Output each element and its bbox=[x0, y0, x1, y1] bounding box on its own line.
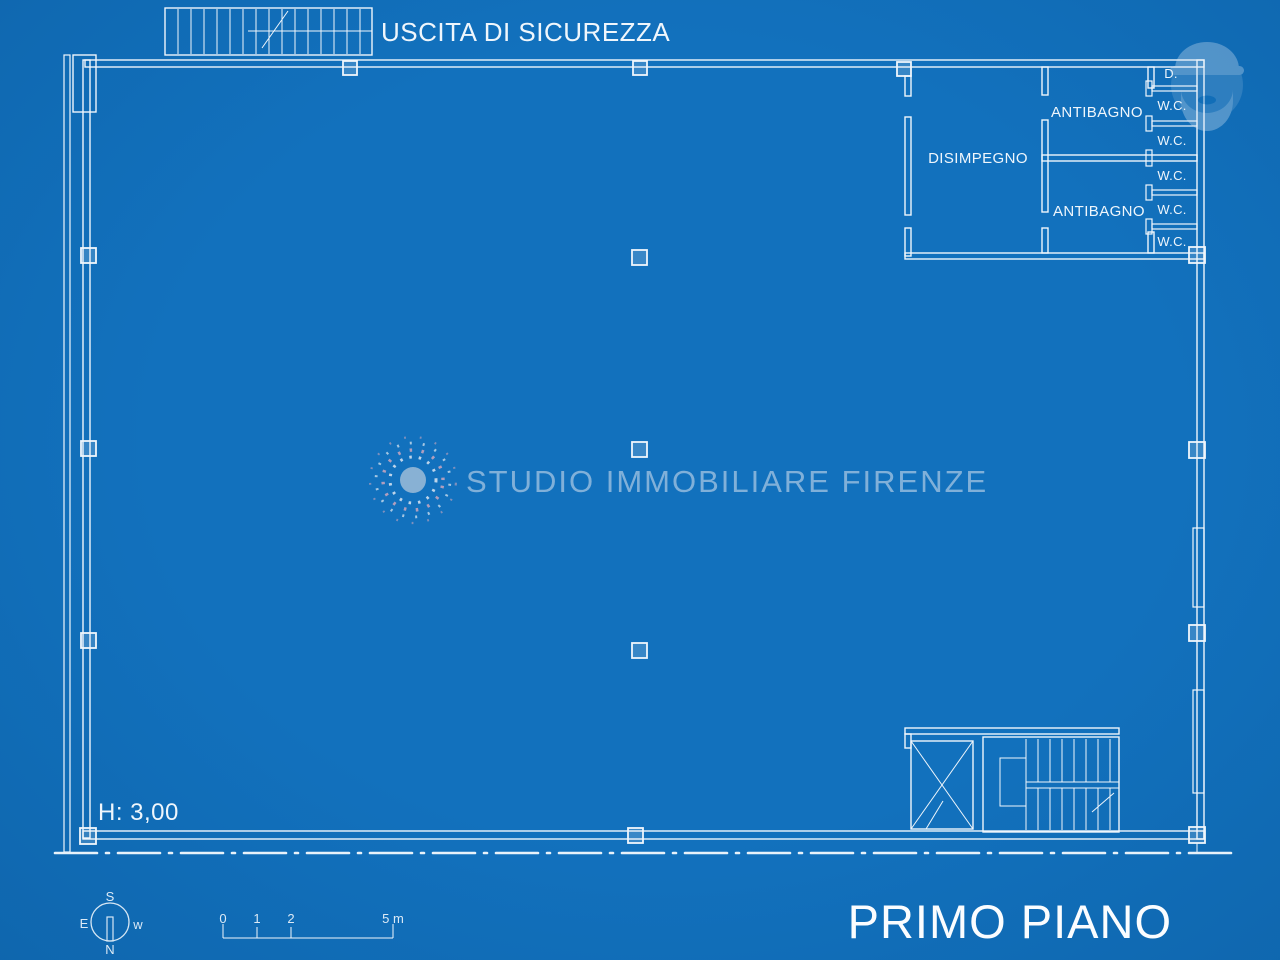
wc-divider bbox=[1152, 190, 1197, 195]
wall-segment bbox=[905, 117, 911, 215]
right-wall-window-1 bbox=[1193, 528, 1204, 607]
column bbox=[633, 61, 647, 75]
compass: S E w N bbox=[80, 889, 144, 957]
scale-tick-5m: 5 m bbox=[382, 911, 404, 926]
wc-divider bbox=[1152, 224, 1197, 229]
room-label-wc-2: W.C. bbox=[1157, 133, 1186, 148]
room-label-antibagno-top: ANTIBAGNO bbox=[1051, 104, 1143, 121]
column bbox=[1189, 827, 1205, 843]
scale-tick-2: 2 bbox=[287, 911, 294, 926]
stair-block-top-wall bbox=[905, 728, 1119, 734]
logo-core bbox=[400, 467, 426, 493]
room-label-wc-4: W.C. bbox=[1157, 202, 1186, 217]
stair-landing bbox=[1026, 782, 1119, 788]
blueprint-floor-plan: USCITA DI SICUREZZA bbox=[0, 0, 1280, 960]
elevator-and-stairs bbox=[905, 728, 1119, 832]
right-wall-window-2 bbox=[1193, 690, 1204, 793]
agency-logo-starburst-icon bbox=[364, 431, 461, 528]
door-jamb bbox=[1146, 185, 1152, 200]
column bbox=[1189, 625, 1205, 641]
left-wall-outer-face bbox=[64, 55, 70, 852]
room-label-antibagno-bottom: ANTIBAGNO bbox=[1053, 203, 1145, 220]
mouth bbox=[1198, 96, 1216, 105]
height-note: H: 3,00 bbox=[98, 799, 179, 826]
compass-bottom-letter: N bbox=[105, 942, 114, 957]
stair-well bbox=[1000, 758, 1026, 806]
agency-watermark: STUDIO IMMOBILIARE FIRENZE bbox=[364, 431, 988, 528]
wall-segment bbox=[1148, 232, 1154, 253]
column bbox=[81, 248, 96, 263]
wall-segment bbox=[905, 228, 911, 256]
column bbox=[81, 441, 96, 456]
room-label-wc-5: W.C. bbox=[1157, 234, 1186, 249]
fire-escape-break-line bbox=[262, 11, 288, 48]
column bbox=[1189, 247, 1205, 263]
column bbox=[632, 442, 647, 457]
agency-watermark-text: STUDIO IMMOBILIARE FIRENZE bbox=[466, 464, 988, 499]
wall-segment bbox=[1148, 67, 1154, 88]
column bbox=[1189, 442, 1205, 458]
compass-circle bbox=[91, 903, 129, 941]
column bbox=[81, 633, 96, 648]
column bbox=[632, 643, 647, 658]
compass-needle bbox=[107, 917, 113, 941]
scale-tick-0: 0 bbox=[219, 911, 226, 926]
hard-hat bbox=[1175, 42, 1239, 69]
wall-segment bbox=[1042, 228, 1048, 253]
service-rooms-block: DISIMPEGNO ANTIBAGNO ANTIBAGNO D. W.C. W… bbox=[905, 66, 1204, 259]
wall-segment bbox=[1042, 120, 1048, 212]
column-markers bbox=[80, 61, 1205, 844]
column bbox=[628, 828, 643, 843]
wall-segment bbox=[905, 76, 911, 96]
fire-escape-stairs bbox=[165, 8, 372, 55]
room-label-disimpegno: DISIMPEGNO bbox=[928, 150, 1028, 167]
scale-bar: 0 1 2 5 m bbox=[219, 911, 403, 938]
compass-right-letter: w bbox=[132, 917, 143, 932]
column bbox=[632, 250, 647, 265]
floor-plan-drawing: USCITA DI SICUREZZA bbox=[0, 0, 1280, 960]
stair-break-line bbox=[1092, 793, 1114, 812]
wall-segment bbox=[905, 734, 911, 748]
compass-top-letter: S bbox=[106, 889, 115, 904]
column bbox=[897, 62, 911, 76]
floor-title: PRIMO PIANO bbox=[848, 895, 1172, 948]
door-jamb bbox=[1146, 150, 1152, 166]
room-label-wc-3: W.C. bbox=[1157, 168, 1186, 183]
column bbox=[80, 828, 96, 844]
hat-brim bbox=[1170, 66, 1244, 75]
internal-staircase bbox=[983, 737, 1119, 832]
stair-treads-lower bbox=[1026, 788, 1110, 830]
builder-face-watermark-icon bbox=[1170, 42, 1244, 131]
safety-exit-label: USCITA DI SICUREZZA bbox=[381, 17, 670, 47]
column bbox=[343, 61, 357, 75]
door-swing-line bbox=[926, 801, 943, 829]
door-jamb bbox=[1146, 116, 1152, 131]
elevator-shaft bbox=[911, 741, 973, 829]
stair-treads-upper bbox=[1026, 739, 1110, 782]
scale-tick-1: 1 bbox=[253, 911, 260, 926]
wall-segment bbox=[1042, 67, 1048, 95]
staircase-outline bbox=[983, 737, 1119, 832]
compass-left-letter: E bbox=[80, 916, 89, 931]
scale-bar-line bbox=[223, 924, 393, 938]
antibagno-divider-wall bbox=[1042, 155, 1197, 161]
service-block-bottom-wall bbox=[905, 253, 1204, 259]
